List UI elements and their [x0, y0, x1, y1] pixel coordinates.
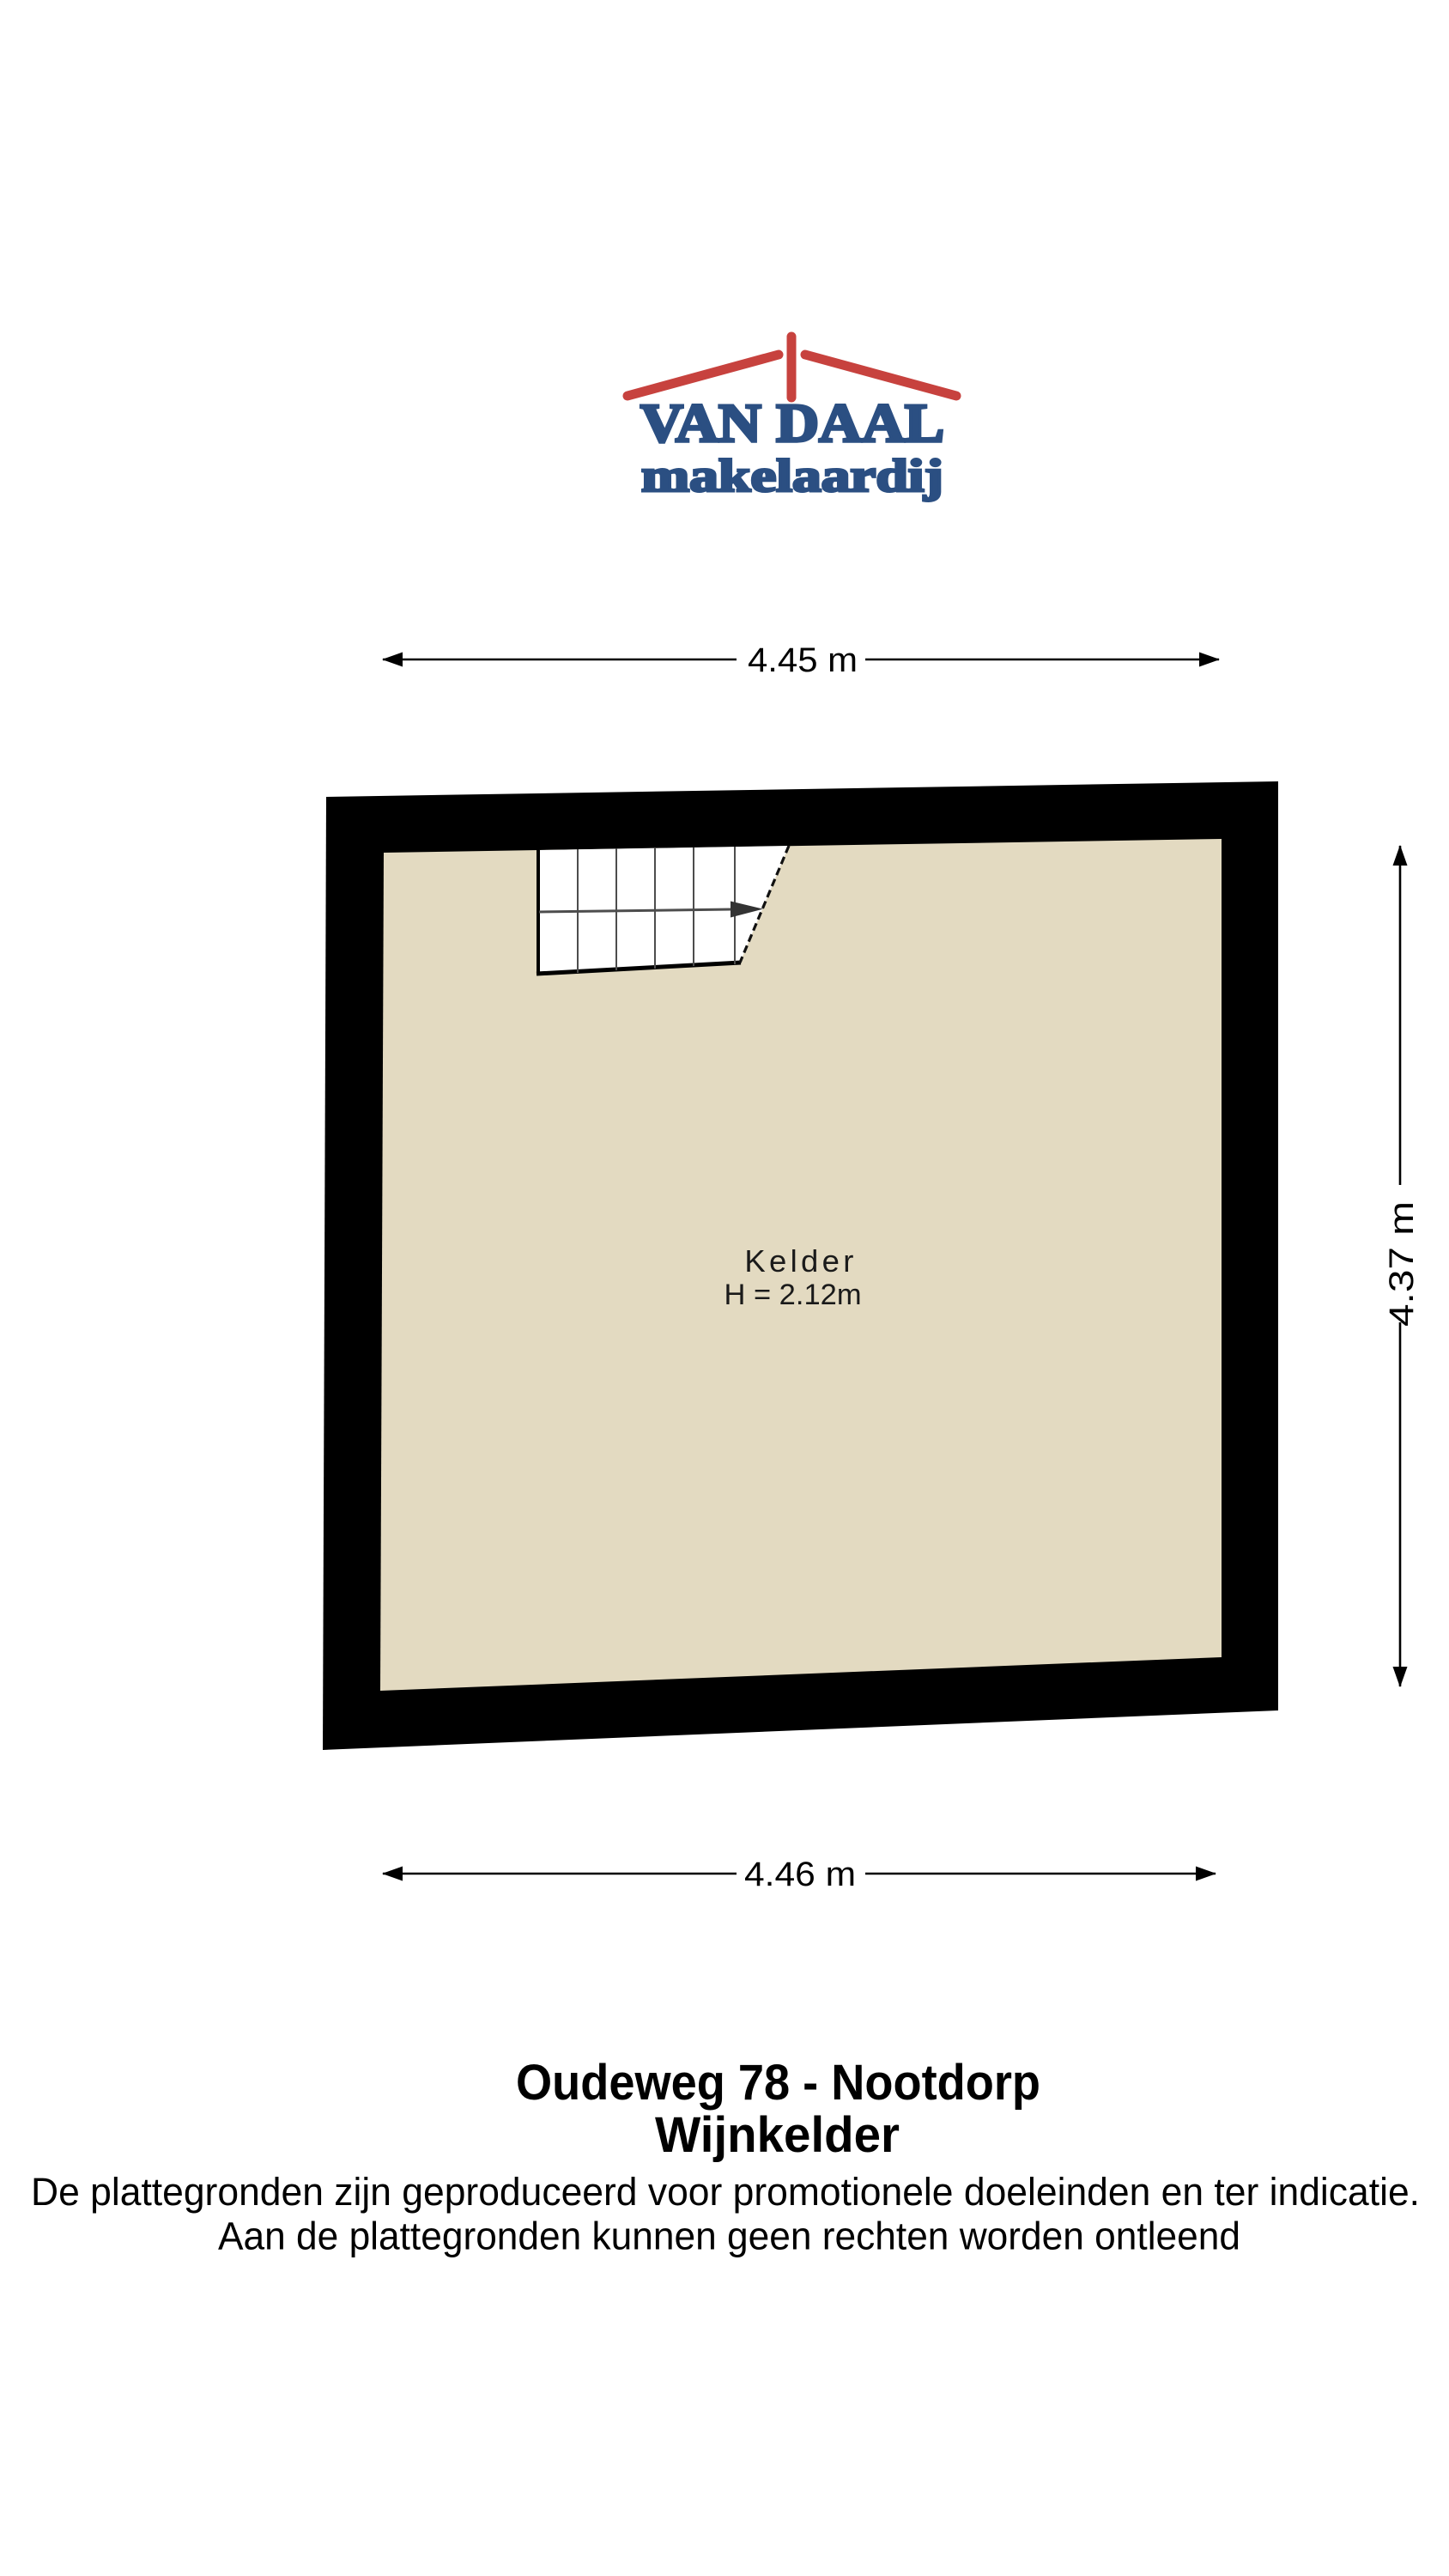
- svg-text:H = 2.12m: H = 2.12m: [724, 1279, 861, 1311]
- svg-text:Aan de plattegronden kunnen ge: Aan de plattegronden kunnen geen rechten…: [218, 2215, 1240, 2258]
- svg-text:4.37 m: 4.37 m: [1383, 1201, 1421, 1327]
- svg-text:De plattegronden zijn geproduc: De plattegronden zijn geproduceerd voor …: [31, 2170, 1420, 2214]
- svg-text:Wijnkelder: Wijnkelder: [655, 2107, 900, 2163]
- svg-text:4.46 m: 4.46 m: [744, 1856, 856, 1893]
- svg-text:makelaardij: makelaardij: [641, 450, 943, 501]
- svg-text:VAN DAAL: VAN DAAL: [640, 393, 944, 453]
- svg-text:4.45 m: 4.45 m: [748, 641, 858, 679]
- svg-text:Oudeweg 78 - Nootdorp: Oudeweg 78 - Nootdorp: [516, 2055, 1040, 2111]
- svg-text:Kelder: Kelder: [744, 1243, 857, 1279]
